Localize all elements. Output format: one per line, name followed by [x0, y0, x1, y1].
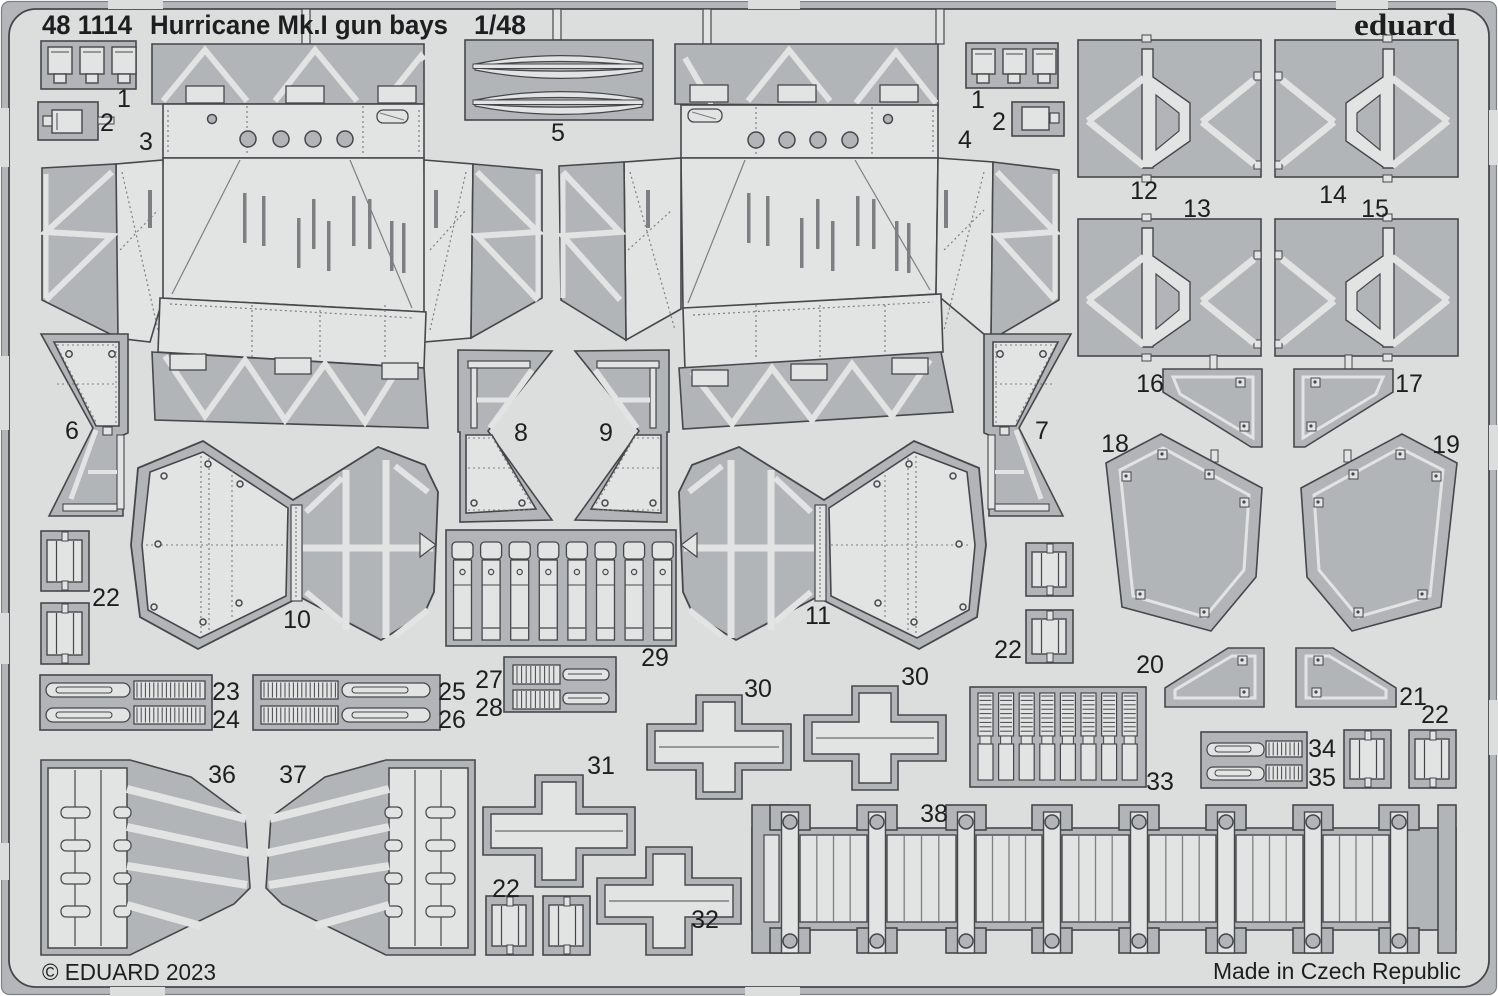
svg-text:38: 38: [920, 800, 948, 828]
svg-text:22: 22: [994, 636, 1022, 664]
svg-text:48 1114: 48 1114: [42, 10, 132, 40]
svg-text:19: 19: [1432, 431, 1460, 459]
svg-text:26: 26: [438, 706, 466, 734]
svg-text:4: 4: [958, 126, 972, 154]
svg-text:33: 33: [1146, 768, 1174, 796]
svg-text:15: 15: [1361, 195, 1389, 223]
svg-text:1: 1: [117, 85, 131, 113]
svg-text:6: 6: [65, 417, 79, 445]
svg-text:29: 29: [641, 644, 669, 672]
svg-text:34: 34: [1308, 735, 1336, 763]
svg-text:16: 16: [1136, 370, 1164, 398]
svg-text:23: 23: [212, 678, 240, 706]
svg-text:17: 17: [1395, 370, 1423, 398]
svg-text:9: 9: [599, 419, 613, 447]
svg-text:12: 12: [1130, 177, 1158, 205]
svg-text:18: 18: [1101, 430, 1129, 458]
svg-text:8: 8: [514, 419, 528, 447]
svg-text:30: 30: [901, 663, 929, 691]
svg-text:14: 14: [1319, 181, 1347, 209]
svg-text:22: 22: [492, 875, 520, 903]
svg-text:30: 30: [744, 675, 772, 703]
svg-text:31: 31: [587, 752, 615, 780]
svg-text:11: 11: [805, 602, 831, 630]
svg-text:7: 7: [1035, 417, 1049, 445]
svg-text:2: 2: [100, 109, 114, 137]
svg-text:5: 5: [551, 119, 565, 147]
svg-text:22: 22: [1421, 701, 1449, 729]
svg-text:22: 22: [92, 584, 120, 612]
svg-text:32: 32: [691, 906, 719, 934]
svg-text:13: 13: [1183, 195, 1211, 223]
svg-text:28: 28: [475, 694, 503, 722]
svg-text:3: 3: [139, 128, 153, 156]
svg-text:Hurricane Mk.I gun bays: Hurricane Mk.I gun bays: [150, 10, 448, 40]
svg-text:20: 20: [1136, 651, 1164, 679]
svg-text:1: 1: [971, 86, 985, 114]
svg-text:2: 2: [992, 108, 1006, 136]
svg-text:1/48: 1/48: [474, 10, 526, 40]
svg-text:25: 25: [438, 678, 466, 706]
svg-text:24: 24: [212, 706, 240, 734]
svg-text:© EDUARD 2023: © EDUARD 2023: [42, 959, 216, 985]
svg-text:27: 27: [475, 666, 503, 694]
svg-text:36: 36: [208, 761, 236, 789]
svg-text:10: 10: [283, 606, 311, 634]
svg-text:37: 37: [279, 761, 307, 789]
svg-text:35: 35: [1308, 764, 1336, 792]
svg-text:eduard: eduard: [1354, 7, 1456, 42]
svg-text:Made in Czech Republic: Made in Czech Republic: [1213, 958, 1461, 984]
